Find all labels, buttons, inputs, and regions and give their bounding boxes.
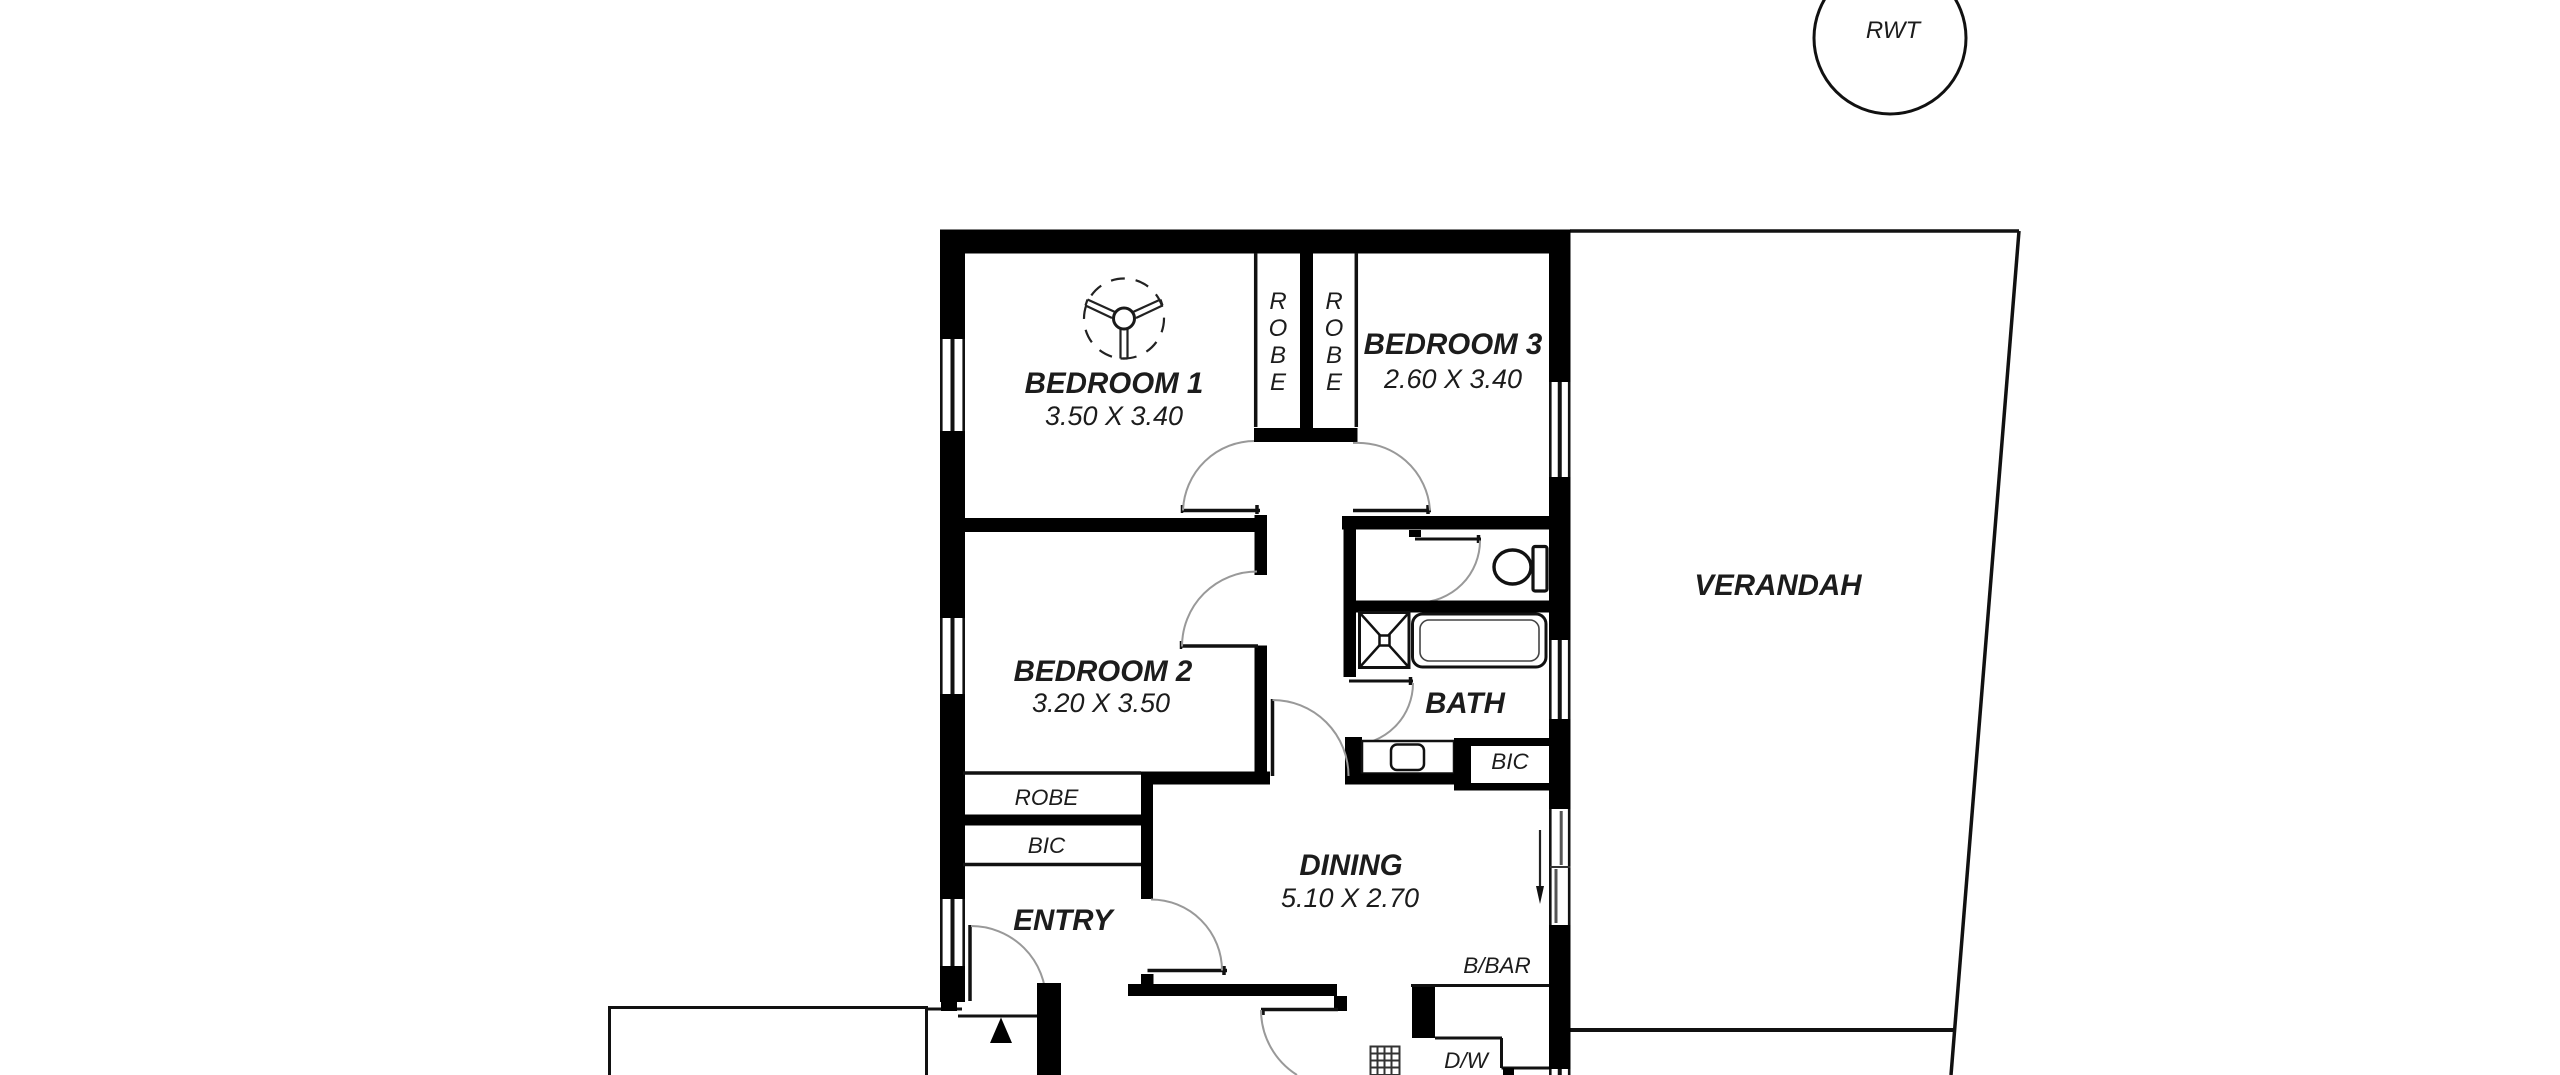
svg-text:2.60 X 3.40: 2.60 X 3.40 xyxy=(1383,364,1522,394)
svg-text:D/W: D/W xyxy=(1444,1048,1490,1073)
svg-text:3.20 X 3.50: 3.20 X 3.50 xyxy=(1032,688,1170,718)
svg-text:E: E xyxy=(1326,369,1343,396)
svg-text:R: R xyxy=(1269,288,1286,315)
svg-text:B: B xyxy=(1270,342,1286,369)
svg-text:O: O xyxy=(1269,315,1288,342)
svg-text:RWT: RWT xyxy=(1866,17,1923,44)
svg-text:BEDROOM 3: BEDROOM 3 xyxy=(1364,328,1543,361)
svg-text:BIC: BIC xyxy=(1028,833,1066,858)
svg-text:O: O xyxy=(1325,315,1344,342)
svg-text:3.50 X 3.40: 3.50 X 3.40 xyxy=(1045,401,1183,431)
svg-text:E: E xyxy=(1270,369,1287,396)
svg-text:ROBE: ROBE xyxy=(1015,785,1080,810)
svg-text:R: R xyxy=(1325,288,1342,315)
svg-text:B/BAR: B/BAR xyxy=(1463,953,1531,978)
svg-text:BATH: BATH xyxy=(1425,687,1505,720)
svg-text:5.10 X 2.70: 5.10 X 2.70 xyxy=(1281,883,1419,913)
svg-text:BEDROOM 1: BEDROOM 1 xyxy=(1025,367,1204,400)
svg-text:DINING: DINING xyxy=(1299,849,1402,882)
svg-text:BEDROOM 2: BEDROOM 2 xyxy=(1014,655,1193,688)
svg-text:VERANDAH: VERANDAH xyxy=(1694,569,1862,602)
svg-text:BIC: BIC xyxy=(1491,749,1529,774)
svg-text:ENTRY: ENTRY xyxy=(1013,904,1115,937)
svg-text:B: B xyxy=(1326,342,1342,369)
